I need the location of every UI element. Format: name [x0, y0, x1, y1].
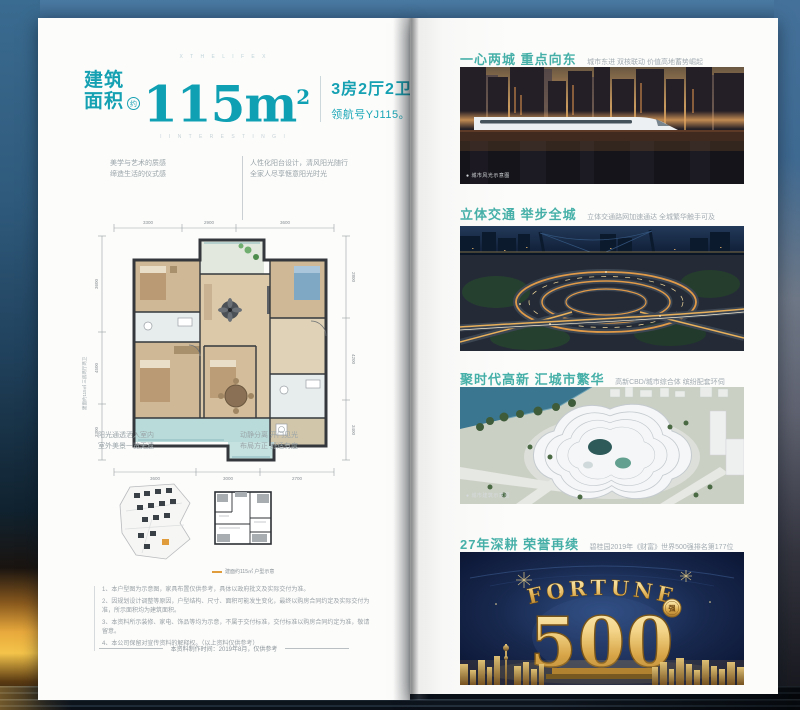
- photo-city-skyline-train: ● 城市风光示意图: [460, 67, 744, 184]
- decorative-mid-line: I I N T E R E S T I N G I: [38, 134, 410, 140]
- site-plan: [110, 481, 202, 565]
- area-label: 建筑 面积: [84, 70, 124, 112]
- svg-text:3600: 3600: [94, 278, 99, 289]
- footer-line: [285, 648, 349, 649]
- bullet-train: [474, 117, 678, 130]
- svg-text:4200: 4200: [351, 354, 356, 365]
- photo-caption: ● 城市风光示意图: [466, 172, 510, 179]
- svg-text:3300: 3300: [143, 220, 154, 225]
- disclaimer-item: 1、本户型图为示意图，家具布置仅供参考，具体以政府批文及实际交付为准。: [102, 586, 370, 596]
- section-title: 立体交通 举步全城: [460, 207, 577, 222]
- background-left-band: [0, 0, 40, 710]
- room-spec: 3房2厅2卫: [331, 75, 412, 99]
- brochure-photo-scene: X T H E L I F E X 建筑 面积 约 115m2 3房2厅2卫 领…: [0, 0, 800, 710]
- section-title: 一心两城 重点向东: [460, 52, 577, 67]
- callout-text: 全家人尽享惬意阳光时光: [250, 169, 348, 180]
- svg-text:强: 强: [669, 605, 676, 613]
- svg-text:3600: 3600: [280, 220, 291, 225]
- footer-text: 本资料制作时间：2019年8月，仅供参考: [171, 644, 278, 653]
- fortune-500-illustration: FORTUNE 500 强: [460, 552, 744, 685]
- callout-divider: [242, 156, 243, 220]
- callout-text: 室外美景一览无遗: [98, 441, 154, 452]
- highlighted-building: [162, 539, 169, 545]
- photo-caption: ● 城市建筑示意图: [466, 492, 510, 499]
- callout-top-right: 人性化阳台设计，清风阳光随行 全家人尽享惬意阳光时光: [250, 158, 348, 180]
- fortune-badge: 强: [663, 599, 681, 617]
- right-page: 一心两城 重点向东 城市东进 双核联动 价值高地蓄势崛起: [410, 18, 778, 694]
- section-header-1: 一心两城 重点向东 城市东进 双核联动 价值高地蓄势崛起: [460, 49, 760, 69]
- area-superscript: 2: [296, 85, 310, 109]
- left-page: X T H E L I F E X 建筑 面积 约 115m2 3房2厅2卫 领…: [38, 18, 410, 700]
- page-footer: 本资料制作时间：2019年8月，仅供参考: [38, 644, 410, 653]
- key-plan-caption: 建面约115㎡ 户型示意: [212, 568, 274, 575]
- callout-bottom-left: 阳光通透洒入室内 室外美景一览无遗: [98, 430, 154, 452]
- section-header-4: 27年深耕 荣誉再续 碧桂园2019年《财富》世界500强排名第177位: [460, 534, 760, 554]
- section-subtitle: 碧桂园2019年《财富》世界500强排名第177位: [590, 544, 734, 551]
- culture-center-illustration: [460, 387, 744, 504]
- callout-bottom-right: 动静分离 开门见光 布局方正 舒适有度: [240, 430, 298, 452]
- callout-text: 缔造生活的仪式感: [110, 169, 166, 180]
- photo-culture-center: ● 城市建筑示意图: [460, 387, 744, 504]
- svg-text:2800: 2800: [351, 272, 356, 283]
- area-number: 115m: [143, 75, 296, 134]
- decorative-top-line: X T H E L I F E X: [38, 54, 410, 60]
- callout-text: 美学与艺术的质感: [110, 158, 166, 169]
- disclaimer-item: 3、本资料所示装修、家电、饰品等均为示意，不属于交付标准，交付标准以购房合同约定…: [102, 619, 370, 638]
- disclaimer-list: 1、本户型图为示意图，家具布置仅供参考，具体以政府批文及实际交付为准。 2、因规…: [94, 586, 370, 651]
- section-header-3: 聚时代高新 汇城市繁华 高新CBD/城市综合体 缤纷配套环伺: [460, 369, 760, 389]
- disclaimer-item: 2、因规划设计调整等原因，户型结构、尺寸、面积可能发生变化，最终以购房合同约定及…: [102, 598, 370, 617]
- approx-badge: 约: [127, 97, 140, 110]
- svg-text:3400: 3400: [351, 425, 356, 436]
- footer-line: [99, 648, 163, 649]
- svg-text:2900: 2900: [204, 220, 215, 225]
- callout-text: 阳光通透洒入室内: [98, 430, 154, 441]
- svg-text:3000: 3000: [223, 476, 234, 481]
- skyline-train-illustration: [460, 67, 744, 184]
- section-title: 聚时代高新 汇城市繁华: [460, 372, 605, 387]
- svg-text:4500: 4500: [94, 362, 99, 373]
- key-plan-thumbnail: [210, 484, 276, 562]
- interchange-illustration: [460, 226, 744, 351]
- callout-text: 动静分离 开门见光: [240, 430, 298, 441]
- unit-model: 领航号YJ115。: [331, 106, 412, 122]
- photo-highway-interchange: [460, 226, 744, 351]
- svg-text:2700: 2700: [292, 476, 303, 481]
- area-label-line2: 面积: [84, 91, 124, 112]
- area-value: 115m2: [143, 70, 310, 132]
- caption-accent-dash: [212, 571, 222, 573]
- plan-side-note: 建面约115㎡ 三房两厅两卫: [81, 356, 88, 410]
- caption-text: 建面约115㎡ 户型示意: [225, 568, 274, 575]
- section-title: 27年深耕 荣誉再续: [460, 537, 579, 552]
- section-subtitle: 城市东进 双核联动 价值高地蓄势崛起: [587, 59, 703, 66]
- headline-divider: [320, 76, 321, 122]
- callout-text: 布局方正 舒适有度: [240, 441, 298, 452]
- callout-top-left: 美学与艺术的质感 缔造生活的仪式感: [110, 158, 166, 180]
- area-label-line1: 建筑: [84, 70, 124, 91]
- headline: 建筑 面积 约 115m2 3房2厅2卫 领航号YJ115。: [84, 70, 412, 132]
- photo-fortune-500: FORTUNE 500 强: [460, 552, 744, 685]
- section-subtitle: 高新CBD/城市综合体 缤纷配套环伺: [615, 379, 725, 386]
- spec-block: 3房2厅2卫 领航号YJ115。: [331, 70, 412, 122]
- section-header-2: 立体交通 举步全城 立体交通路网加速通达 全城繁华触手可及: [460, 204, 760, 224]
- section-subtitle: 立体交通路网加速通达 全城繁华触手可及: [587, 214, 715, 221]
- callout-text: 人性化阳台设计，清风阳光随行: [250, 158, 348, 169]
